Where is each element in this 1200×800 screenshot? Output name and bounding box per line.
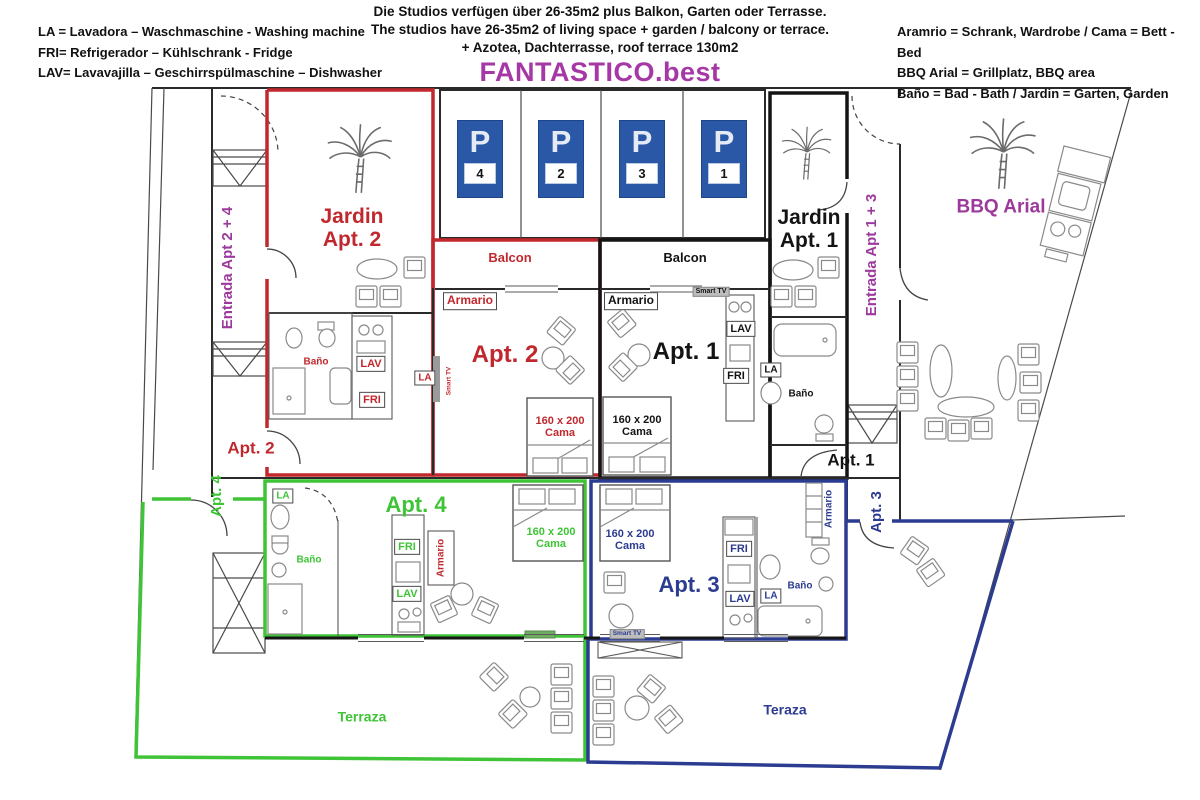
legend-left-line: LAV= Lavavajilla – Geschirrspülmaschine … bbox=[38, 63, 382, 84]
header-center-line: + Azotea, Dachterrasse, roof terrace 130… bbox=[371, 39, 829, 57]
la-apt2-label: LA bbox=[414, 371, 435, 386]
balcon-apt2-label: Balcon bbox=[488, 251, 531, 265]
cama-apt2-label: 160 x 200 Cama bbox=[536, 415, 585, 439]
bbq-kitchen bbox=[1037, 146, 1111, 266]
entrada-apt-2-4-label: Entrada Apt 2 + 4 bbox=[220, 207, 237, 329]
apt4-door-label: Apt. 4 bbox=[209, 475, 226, 517]
apt1-label: Apt. 1 bbox=[653, 339, 720, 365]
lav-apt4-label: LAV bbox=[392, 586, 421, 602]
parking-sign: P 3 bbox=[619, 120, 665, 198]
banio-apt2-label: Baño bbox=[304, 357, 329, 368]
floor-plan-page: LA = Lavadora – Waschmaschine - Washing … bbox=[0, 0, 1200, 800]
floor-plan-svg bbox=[0, 0, 1200, 800]
smart-tv-apt3-label: Smart TV bbox=[610, 629, 645, 639]
legend-left-line: LA = Lavadora – Waschmaschine - Washing … bbox=[38, 22, 382, 43]
parking-space-number: 1 bbox=[708, 163, 740, 184]
parking-space-number: 3 bbox=[626, 163, 658, 184]
jardin-apt2-label: Jardin Apt. 2 bbox=[320, 205, 383, 251]
teraza-label: Teraza bbox=[763, 702, 806, 717]
legend-left: LA = Lavadora – Waschmaschine - Washing … bbox=[38, 22, 382, 84]
banio-apt4-label: Baño bbox=[297, 555, 322, 566]
parking-space-number: 4 bbox=[464, 163, 496, 184]
parking-sign: P 1 bbox=[701, 120, 747, 198]
parking-space-number: 2 bbox=[545, 163, 577, 184]
armario-apt4-label: Armario bbox=[436, 539, 447, 577]
parking-sign: P 2 bbox=[538, 120, 584, 198]
banio-apt3-label: Baño bbox=[788, 581, 813, 592]
smart-tv-apt2-label: Smart TV bbox=[445, 367, 452, 396]
bbq-arial-label: BBQ Arial bbox=[956, 198, 1045, 219]
header-center: Die Studios verfügen über 26-35m2 plus B… bbox=[371, 3, 829, 87]
apt2-door-label: Apt. 2 bbox=[227, 440, 274, 459]
legend-right: Aramrio = Schrank, Wardrobe / Cama = Bet… bbox=[897, 22, 1200, 104]
apt1-door-label: Apt. 1 bbox=[827, 452, 874, 471]
armario-apt2-label: Armario bbox=[443, 292, 497, 310]
la-apt4-label: LA bbox=[272, 489, 293, 504]
legend-right-line: BBQ Arial = Grillplatz, BBQ area bbox=[897, 63, 1200, 84]
parking-p-icon: P bbox=[470, 121, 491, 163]
apt2-label: Apt. 2 bbox=[472, 342, 539, 368]
lav-apt1-label: LAV bbox=[726, 321, 755, 337]
parking-p-icon: P bbox=[632, 121, 653, 163]
parking-p-icon: P bbox=[714, 121, 735, 163]
banio-apt1-label: Baño bbox=[789, 389, 814, 400]
fri-apt2-label: FRI bbox=[359, 392, 385, 408]
apt3-door-label: Apt. 3 bbox=[869, 491, 886, 533]
brand-logo: FANTASTICO.best bbox=[371, 57, 829, 87]
la-apt1-label: LA bbox=[760, 363, 781, 378]
balcon-apt1-label: Balcon bbox=[663, 251, 706, 265]
legend-right-line: Baño = Bad - Bath / Jardin = Garten, Gar… bbox=[897, 84, 1200, 105]
apt3-interior bbox=[600, 483, 894, 638]
entrada-apt-1-3-label: Entrada Apt 1 + 3 bbox=[864, 194, 881, 316]
fri-apt4-label: FRI bbox=[394, 539, 420, 555]
terraza-furniture bbox=[479, 662, 572, 733]
legend-right-line: Aramrio = Schrank, Wardrobe / Cama = Bet… bbox=[897, 22, 1200, 63]
la-apt3-label: LA bbox=[760, 589, 781, 604]
header-center-line: Die Studios verfügen über 26-35m2 plus B… bbox=[371, 3, 829, 21]
cama-apt1-label: 160 x 200 Cama bbox=[613, 414, 662, 438]
fri-apt3-label: FRI bbox=[726, 541, 752, 557]
parking-sign: P 4 bbox=[457, 120, 503, 198]
lav-apt2-label: LAV bbox=[356, 356, 385, 372]
armario-apt1-label: Armario bbox=[604, 292, 658, 310]
cama-apt3-label: 160 x 200 Cama bbox=[606, 528, 655, 552]
jardin-apt1-label: Jardin Apt. 1 bbox=[777, 206, 840, 252]
smart-tv-apt1-label: Smart TV bbox=[693, 287, 730, 297]
terraza-label: Terraza bbox=[338, 709, 387, 724]
header-center-line: The studios have 26-35m2 of living space… bbox=[371, 21, 829, 39]
fri-apt1-label: FRI bbox=[723, 368, 749, 384]
legend-left-line: FRI= Refrigerador – Kühlschrank - Fridge bbox=[38, 43, 382, 64]
apt4-label: Apt. 4 bbox=[385, 493, 446, 517]
apt3-label: Apt. 3 bbox=[658, 573, 719, 597]
armario-apt3-label: Armario bbox=[824, 490, 835, 528]
parking-p-icon: P bbox=[551, 121, 572, 163]
cama-apt4-label: 160 x 200 Cama bbox=[527, 526, 576, 550]
bbq-area bbox=[897, 146, 1111, 441]
lav-apt3-label: LAV bbox=[725, 591, 754, 607]
